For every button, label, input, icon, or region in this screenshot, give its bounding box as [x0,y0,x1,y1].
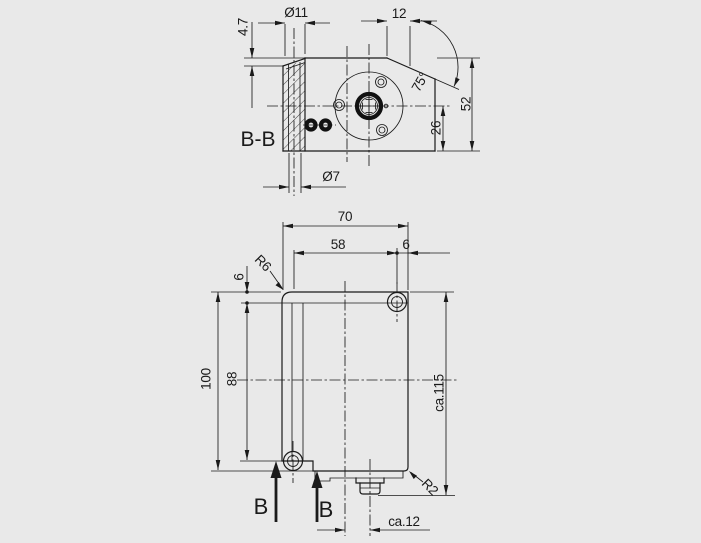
section-height-label: 52 [459,97,474,111]
counterbore-depth-label: 4.7 [236,18,251,36]
through-hole-label: Ø7 [322,169,339,184]
drawing-background [0,0,701,543]
drawing-canvas: Ø11 4.7 12 75° [0,0,701,543]
hole-edge-offset-label: 6 [402,237,409,252]
section-marker-b-right: B [319,497,334,522]
top-edge-offset-label: 6 [232,273,247,280]
center-height-label: 26 [429,121,444,135]
section-view-title: B-B [240,128,275,151]
top-offset-label: 12 [392,6,406,21]
width-label: 70 [338,209,352,224]
technical-drawing: Ø11 4.7 12 75° [0,0,701,543]
hole-spacing-label: 58 [331,237,345,252]
counterbore-dia-label: Ø11 [284,5,308,20]
overall-height-label: ca.115 [432,374,447,412]
hatched-foot-section [283,59,305,152]
connector-offset-label: ca.12 [388,514,420,529]
body-height-label: 100 [199,368,214,390]
section-marker-b-left: B [254,494,269,519]
hole-height-label: 88 [225,372,240,386]
